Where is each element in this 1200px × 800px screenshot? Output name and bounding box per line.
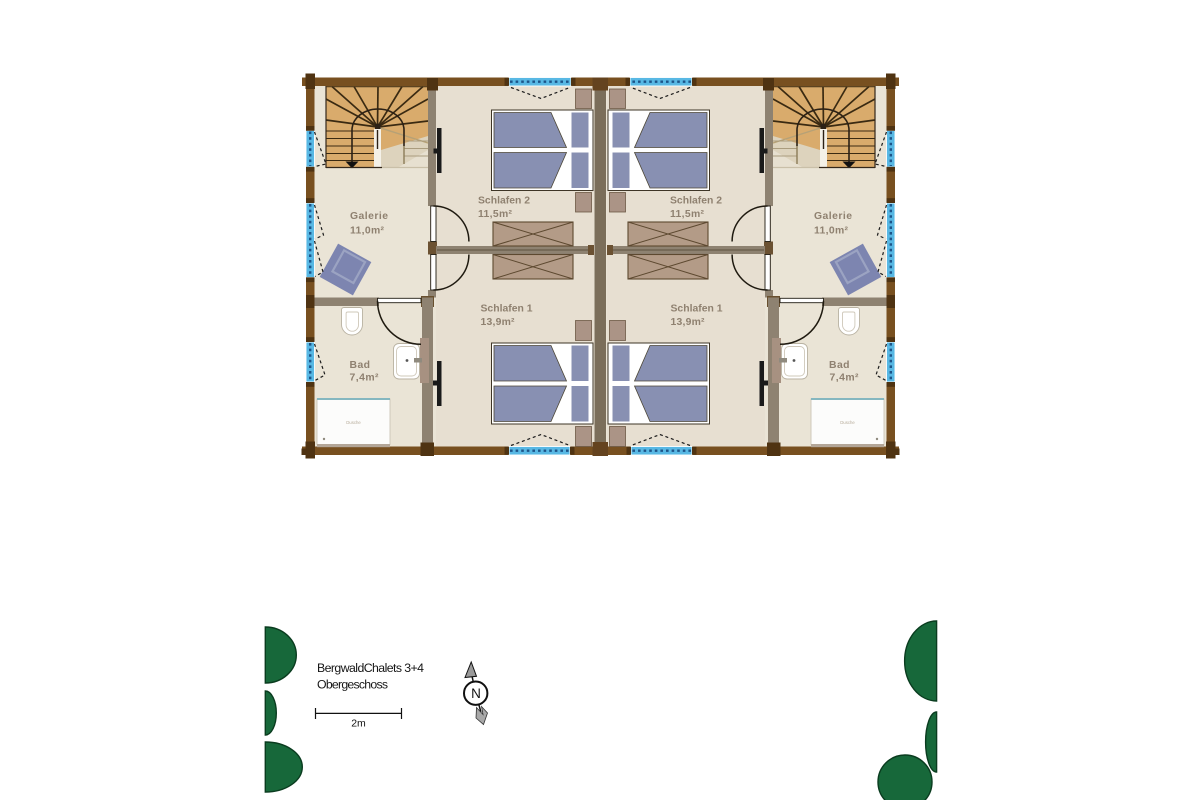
svg-text:7,4m²: 7,4m² — [350, 373, 380, 384]
svg-text:11,5m²: 11,5m² — [478, 209, 513, 220]
svg-text:Bad: Bad — [350, 360, 371, 371]
svg-text:Schlafen 2: Schlafen 2 — [478, 196, 530, 207]
svg-text:Schlafen 2: Schlafen 2 — [670, 196, 722, 207]
svg-text:7,4m²: 7,4m² — [830, 373, 860, 384]
svg-text:13,9m²: 13,9m² — [481, 317, 516, 328]
svg-text:Schlafen 1: Schlafen 1 — [481, 304, 533, 315]
svg-text:Dusche: Dusche — [840, 420, 855, 425]
svg-text:Galerie: Galerie — [350, 211, 388, 222]
svg-text:2m: 2m — [351, 718, 366, 730]
svg-text:11,0m²: 11,0m² — [814, 226, 849, 237]
svg-text:11,5m²: 11,5m² — [670, 209, 705, 220]
svg-text:11,0m²: 11,0m² — [350, 226, 385, 237]
svg-text:N: N — [471, 686, 481, 701]
svg-text:Schlafen 1: Schlafen 1 — [671, 304, 723, 315]
svg-text:Bad: Bad — [829, 360, 850, 371]
svg-text:Obergeschoss: Obergeschoss — [317, 678, 388, 692]
svg-text:Galerie: Galerie — [814, 211, 852, 222]
svg-text:BergwaldChalets 3+4: BergwaldChalets 3+4 — [317, 661, 424, 675]
svg-text:13,9m²: 13,9m² — [671, 317, 706, 328]
svg-text:Dusche: Dusche — [346, 420, 361, 425]
